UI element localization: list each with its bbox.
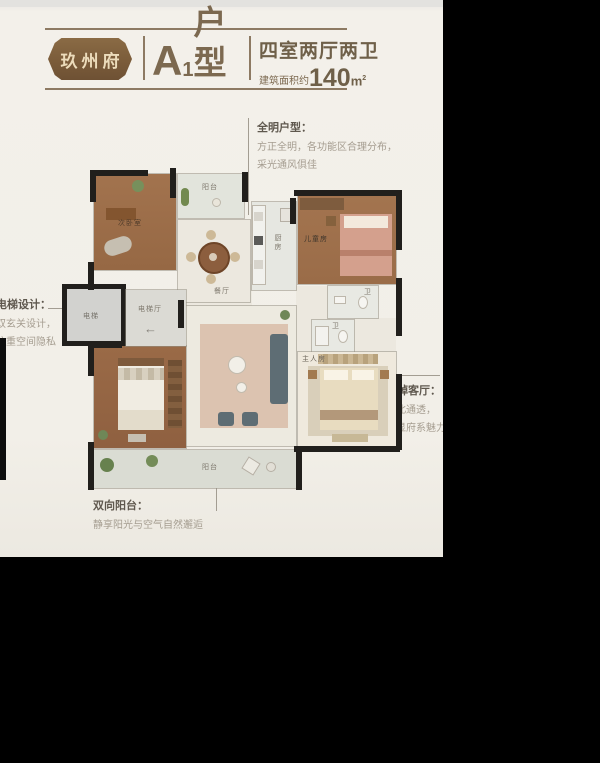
- wall-segment: [294, 190, 400, 196]
- wall-segment: [242, 172, 248, 202]
- nightstand-icon: [380, 370, 389, 379]
- chaise-icon: [102, 234, 134, 258]
- elevator-annotation-line2: 注重空间隐私: [0, 333, 56, 348]
- elevator-annotation-line1: 双玄关设计，: [0, 315, 56, 330]
- wall-segment: [90, 170, 148, 176]
- blanket-icon: [340, 250, 392, 256]
- room-kitchen-label: 厨房: [272, 234, 282, 252]
- area-unit-base: m: [351, 73, 363, 88]
- headboard-icon: [118, 358, 164, 366]
- wardrobe-icon: [318, 354, 378, 364]
- wall-segment: [88, 342, 122, 348]
- elevator-label: 电梯: [83, 311, 99, 321]
- black-bar-bottom: [0, 557, 600, 763]
- room-balcony-top: 阳台: [178, 174, 244, 218]
- room-bath2: 卫: [312, 320, 354, 352]
- balcony-top-label: 阳台: [202, 182, 218, 192]
- counter-appliance-icon: [254, 260, 263, 269]
- room-living: [178, 306, 296, 446]
- elevator-hall: 电梯厅 ←: [126, 290, 186, 346]
- elevator-annotation-title: 电梯设计：: [0, 296, 56, 312]
- patio-table-icon: [266, 462, 276, 472]
- area-line: 建筑面积约 140 m2: [259, 66, 379, 90]
- pillow-icon: [324, 370, 348, 380]
- screenshot-canvas: 玖州府 A 1 户型 四室两厅两卫 建筑面积约 140 m2 全明户型： 方正全…: [0, 0, 600, 763]
- area-unit: m2: [351, 70, 366, 90]
- room-bath1: 卫: [328, 286, 378, 318]
- stool-icon: [128, 434, 146, 442]
- pillow-icon: [118, 368, 164, 380]
- bright-annotation-title: 全明户型：: [257, 119, 397, 135]
- room-study-label: 次卧室: [118, 218, 142, 228]
- bench-icon: [332, 434, 368, 442]
- wall-segment: [170, 168, 176, 198]
- toilet-icon: [358, 296, 368, 309]
- wardrobe-icon: [168, 360, 182, 428]
- plant-icon: [146, 455, 158, 467]
- armchair-icon: [218, 412, 234, 426]
- unit-suffix: 户型: [193, 3, 248, 83]
- wall-segment: [294, 446, 400, 452]
- photo-left-dark-edge: [0, 338, 6, 480]
- corridor-floor-2: [354, 318, 396, 352]
- nightstand-icon: [326, 216, 336, 226]
- chair-icon: [206, 274, 216, 284]
- pillow-icon: [344, 216, 388, 228]
- chair-icon: [186, 252, 196, 262]
- unit-title: A 1 户型: [152, 33, 248, 83]
- spec-block: 四室两厅两卫 建筑面积约 140 m2: [259, 36, 379, 90]
- room-kids-label: 儿童房: [304, 234, 328, 244]
- sink-icon: [334, 296, 346, 304]
- toilet-icon: [338, 330, 348, 343]
- shower-icon: [315, 326, 329, 346]
- balcony-annotation-title: 双向阳台：: [93, 497, 203, 513]
- coffee-table-icon: [228, 356, 246, 374]
- plant-icon: [98, 430, 108, 440]
- elevator-annotation: 电梯设计： 双玄关设计， 注重空间隐私: [0, 296, 56, 348]
- plant-icon: [280, 310, 290, 320]
- room-master-label: 主人房: [302, 354, 326, 364]
- header-divider-1: [143, 36, 145, 80]
- room-balcony-bottom: 阳台: [94, 450, 300, 488]
- wall-segment: [396, 278, 402, 336]
- pillow-icon: [352, 370, 374, 380]
- unit-letter: A: [152, 39, 182, 83]
- wardrobe-icon: [300, 198, 344, 210]
- wall-segment: [178, 300, 184, 328]
- stove-icon: [254, 236, 263, 245]
- elevator-hall-label: 电梯厅: [138, 304, 162, 314]
- table-setting-icon: [209, 253, 217, 261]
- nightstand-icon: [308, 370, 317, 379]
- flyer-photo: 玖州府 A 1 户型 四室两厅两卫 建筑面积约 140 m2 全明户型： 方正全…: [0, 0, 443, 557]
- entry-arrow-icon: ←: [144, 324, 157, 334]
- armchair-icon: [242, 412, 258, 426]
- room-dining-label: 餐厅: [214, 286, 230, 296]
- room-bath2-label: 卫: [332, 321, 340, 331]
- elevator-shaft: 电梯: [62, 284, 126, 346]
- patio-chair-icon: [241, 456, 260, 475]
- room-master: 主人房: [298, 352, 396, 446]
- balcony-bottom-label: 阳台: [202, 462, 218, 472]
- bright-annotation: 全明户型： 方正全明，各功能区合理分布， 采光通风俱佳: [257, 119, 397, 171]
- wall-segment: [396, 374, 402, 450]
- brand-name: 玖州府: [57, 47, 124, 72]
- plant-icon: [100, 458, 114, 472]
- plant-icon: [181, 188, 189, 206]
- wall-segment: [296, 450, 302, 490]
- room-dining: 餐厅: [178, 220, 250, 302]
- chair-icon: [206, 230, 216, 240]
- wall-segment: [290, 198, 296, 224]
- balcony-annotation: 双向阳台： 静享阳光与空气自然邂逅: [93, 497, 203, 531]
- side-table-icon: [236, 382, 247, 393]
- blanket-icon: [118, 410, 164, 430]
- room-bedroom2: [94, 346, 186, 448]
- area-value: 140: [309, 66, 351, 90]
- chair-icon: [230, 252, 240, 262]
- wall-segment: [88, 442, 94, 490]
- bed-runner-icon: [320, 410, 378, 420]
- sink-icon: [254, 212, 263, 221]
- unit-number: 1: [182, 57, 193, 83]
- room-bath1-label: 卫: [364, 287, 372, 297]
- plant-icon: [132, 180, 144, 192]
- floor-plan: 次卧室 阳台 餐厅: [60, 168, 400, 490]
- brand-badge: 玖州府: [48, 38, 132, 80]
- sofa-icon: [270, 334, 288, 404]
- balcony-table-icon: [212, 198, 221, 207]
- wall-segment: [396, 190, 402, 250]
- bright-annotation-line1: 方正全明，各功能区合理分布，: [257, 138, 397, 153]
- room-kids: 儿童房: [298, 196, 396, 284]
- room-spec: 四室两厅两卫: [259, 36, 379, 63]
- balcony-annotation-line1: 静享阳光与空气自然邂逅: [93, 516, 203, 531]
- header-divider-2: [249, 36, 251, 80]
- room-study: 次卧室: [94, 174, 176, 270]
- area-unit-sup: 2: [362, 75, 366, 82]
- wall-segment: [88, 262, 94, 290]
- area-prefix: 建筑面积约: [259, 74, 309, 90]
